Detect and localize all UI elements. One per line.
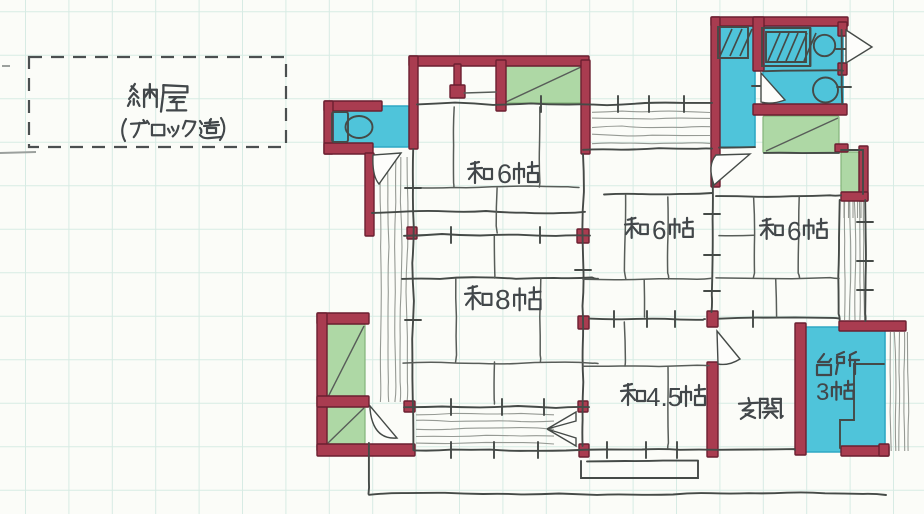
svg-text:8: 8: [495, 284, 511, 315]
svg-text:6: 6: [787, 216, 801, 246]
svg-text:6: 6: [497, 159, 512, 189]
svg-text:6: 6: [652, 215, 666, 245]
svg-text:4.5: 4.5: [646, 382, 682, 412]
svg-text:3: 3: [816, 379, 829, 406]
